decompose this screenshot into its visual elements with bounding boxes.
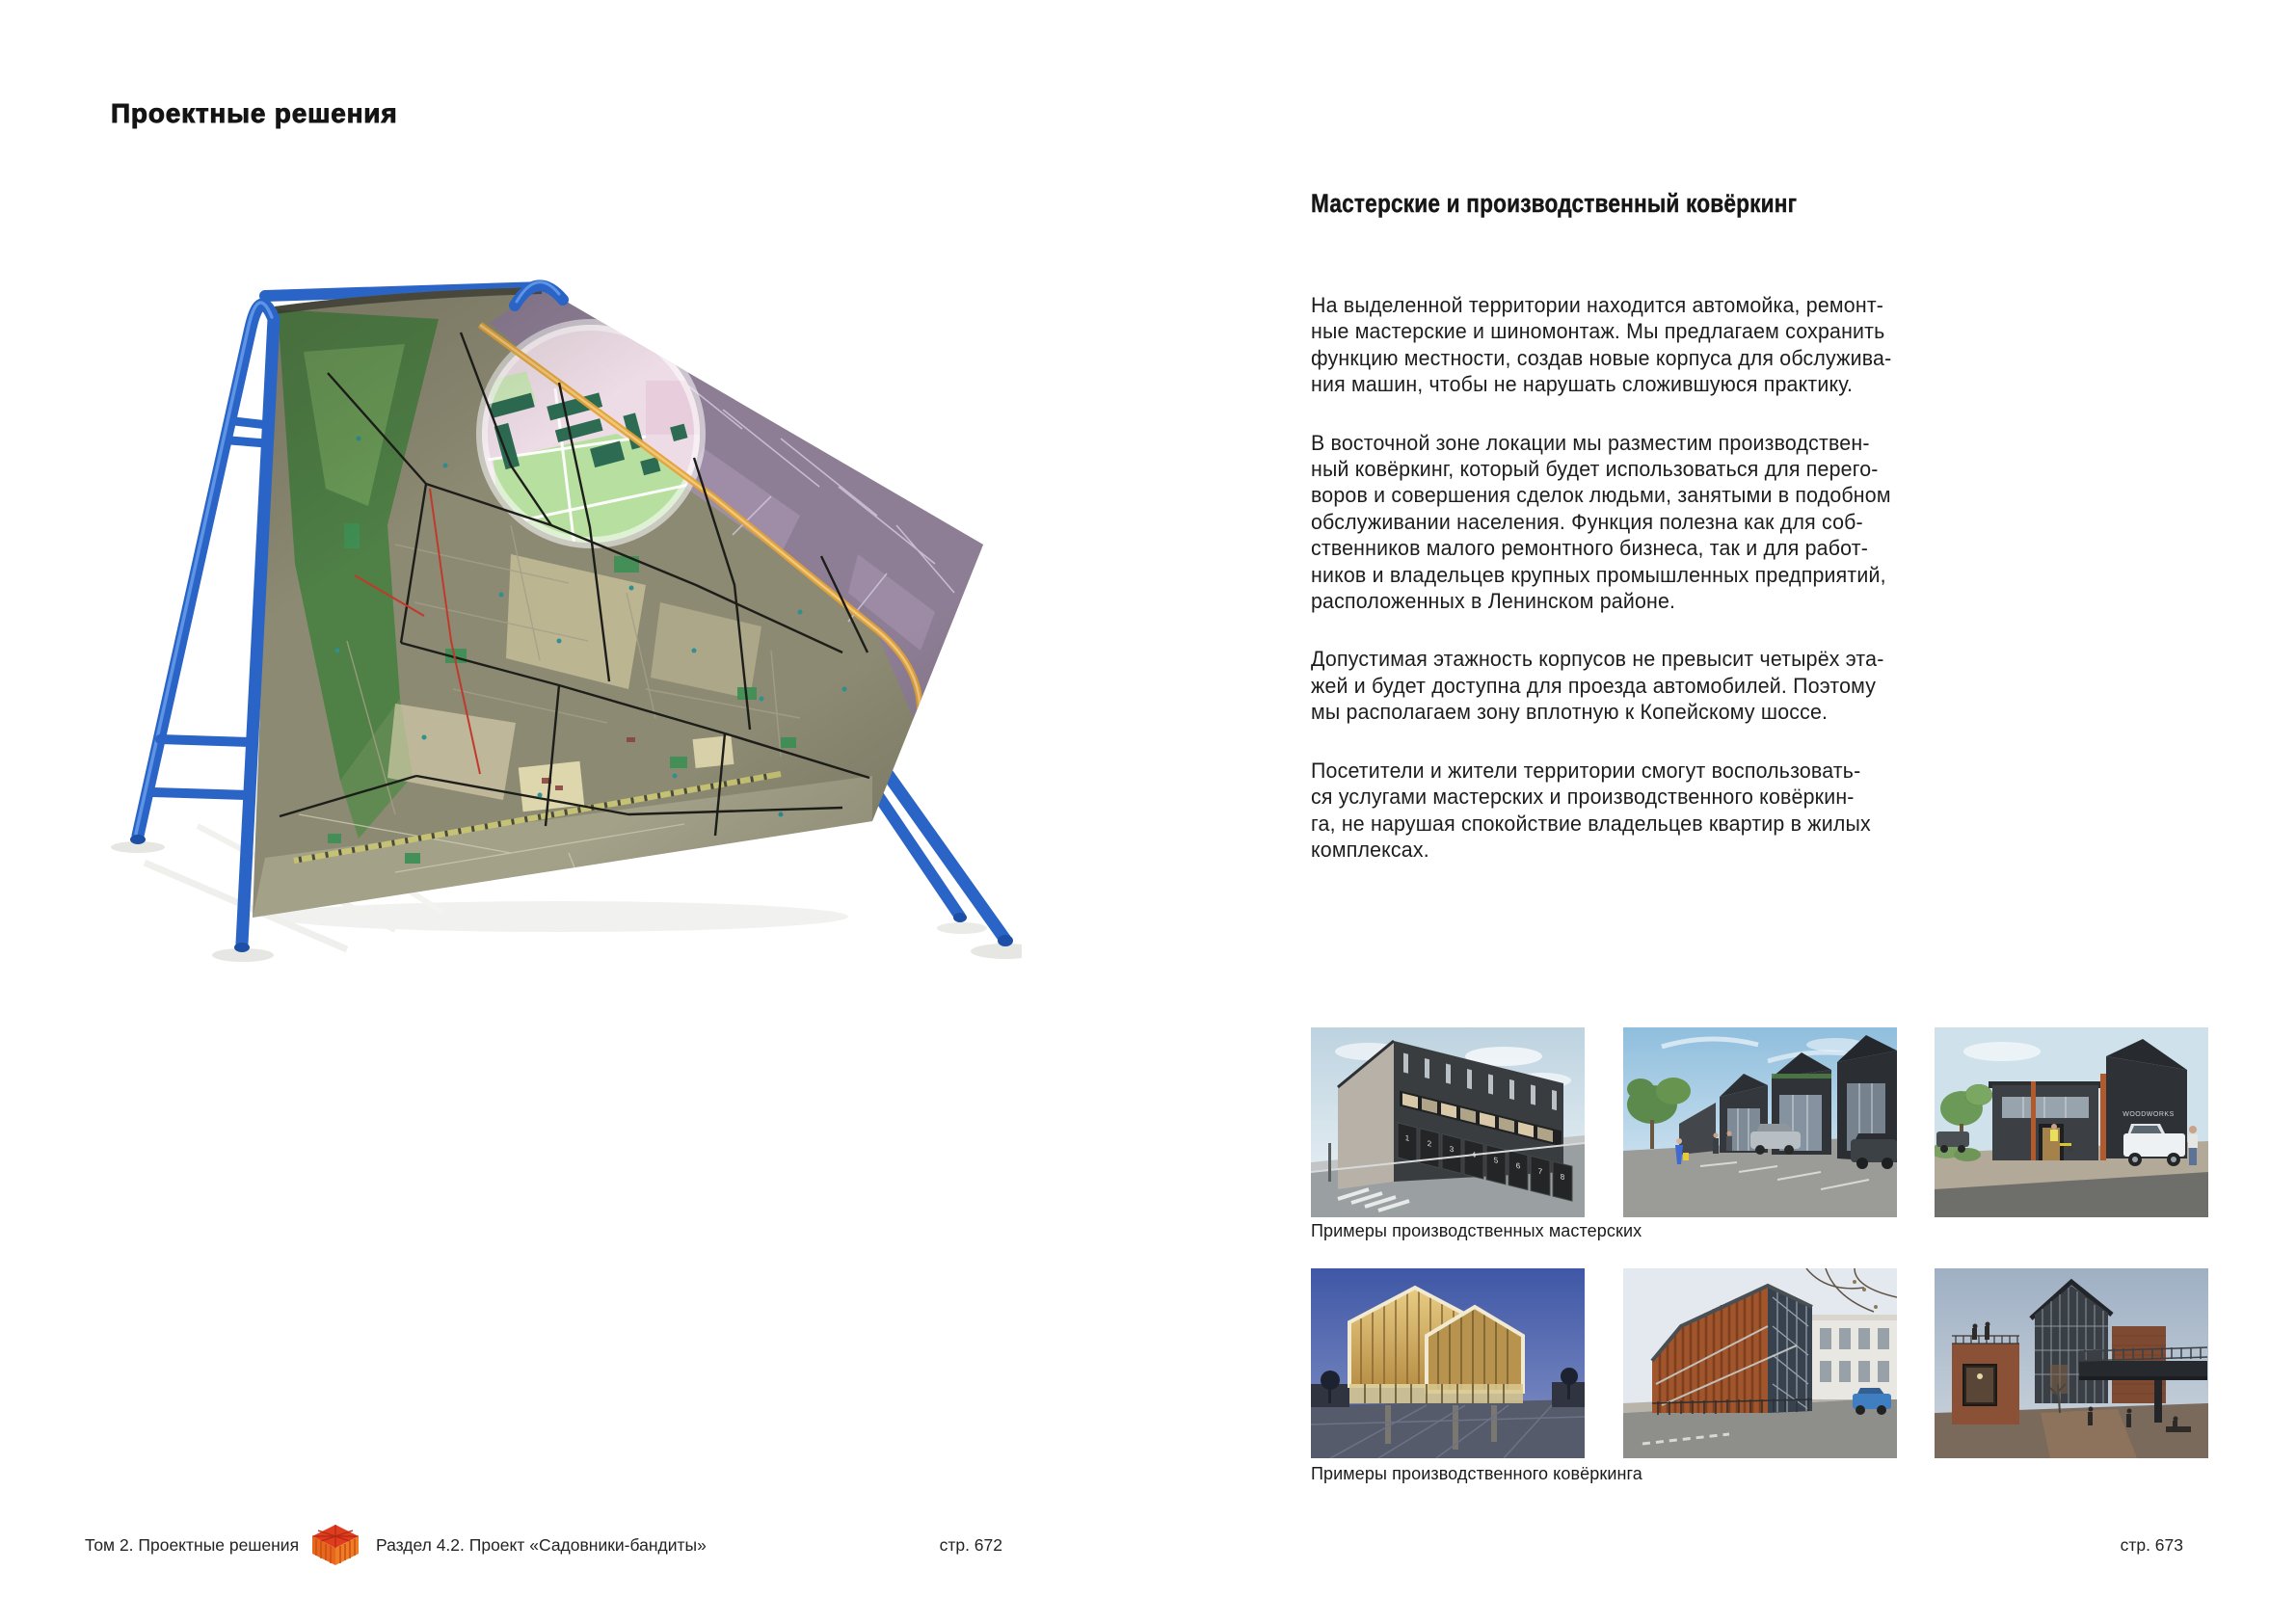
footer-page-number-left: стр. 672 bbox=[810, 1535, 1002, 1556]
photo-evening-gables bbox=[1311, 1268, 1585, 1458]
photo-workshop-street bbox=[1623, 1027, 1897, 1217]
photo-woodworks: WOODWORKS bbox=[1935, 1027, 2208, 1217]
footer-volume: Том 2. Проектные решения bbox=[85, 1535, 299, 1556]
gallery-caption: Примеры производственных мастерских bbox=[1311, 1221, 1642, 1241]
map-stand-svg bbox=[106, 236, 1022, 1046]
body-paragraph: Допустимая этажность корпусов не превыси… bbox=[1311, 646, 1956, 725]
right-column: Мастерские и производственный ковёркинг … bbox=[1311, 189, 1976, 894]
garage-door-number: 6 bbox=[1516, 1161, 1521, 1171]
photo-workshop-garages: 1 2 3 4 5 6 7 8 bbox=[1311, 1027, 1585, 1217]
footer-section: Раздел 4.2. Проект «Садовники-бандиты» bbox=[376, 1535, 707, 1556]
body-paragraph: Посетители и жители территории смогут во… bbox=[1311, 758, 1956, 864]
body-paragraph: В восточной зоне локации мы разместим пр… bbox=[1311, 430, 1956, 615]
photo-brick-dusk bbox=[1935, 1268, 2208, 1458]
photo-corten-atrium bbox=[1623, 1268, 1897, 1458]
garage-door-number: 3 bbox=[1450, 1145, 1455, 1155]
section-heading: Мастерские и производственный ковёркинг bbox=[1311, 189, 1870, 219]
garage-door-number: 5 bbox=[1494, 1156, 1499, 1165]
map-stand-illustration bbox=[106, 236, 1022, 1046]
gallery-caption: Примеры производственного ковёркинга bbox=[1311, 1464, 1642, 1484]
garage-door-number: 8 bbox=[1561, 1172, 1565, 1182]
page-title: Проектные решения bbox=[111, 98, 397, 129]
body-paragraph: На выделенной территории находится автом… bbox=[1311, 292, 1956, 398]
cube-logo-icon bbox=[310, 1523, 360, 1565]
woodworks-sign: WOODWORKS bbox=[2122, 1111, 2175, 1118]
garage-door-number: 2 bbox=[1428, 1139, 1432, 1149]
garage-door-number: 1 bbox=[1405, 1133, 1410, 1143]
footer-page-number-right: стр. 673 bbox=[1990, 1535, 2183, 1556]
garage-door-number: 7 bbox=[1538, 1166, 1543, 1176]
